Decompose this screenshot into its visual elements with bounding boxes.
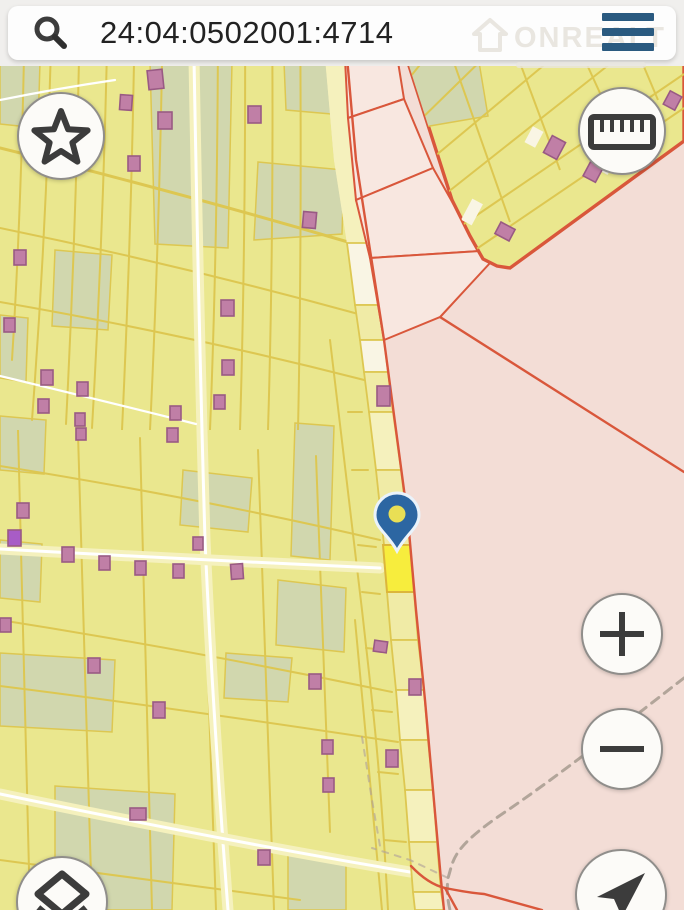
building [409, 679, 421, 695]
building [14, 250, 26, 265]
star-icon [30, 105, 92, 167]
building [170, 406, 181, 420]
building [373, 640, 387, 653]
building [158, 112, 172, 129]
search-bar[interactable]: 24:04:0502001:4714 ONREALT [8, 6, 676, 60]
hamburger-icon [602, 13, 654, 21]
building [119, 95, 132, 111]
building [214, 395, 225, 409]
cadastral-map-app: 24:04:0502001:4714 ONREALT [0, 0, 684, 910]
top-bar: 24:04:0502001:4714 ONREALT [0, 0, 684, 66]
building [130, 808, 146, 820]
building [322, 740, 333, 754]
building [128, 156, 140, 171]
building [4, 318, 15, 332]
building [323, 778, 334, 792]
building [222, 360, 234, 375]
building [41, 370, 53, 385]
building [38, 399, 49, 413]
building [173, 564, 184, 578]
building [76, 428, 86, 440]
building [309, 674, 321, 689]
zoom-out-button[interactable] [581, 708, 663, 790]
ruler-icon [587, 109, 657, 153]
building [258, 850, 270, 865]
building [135, 561, 146, 575]
navigation-arrow-icon [593, 869, 649, 910]
building [147, 69, 164, 89]
building [248, 106, 261, 123]
building [230, 564, 243, 580]
zoom-in-button[interactable] [581, 593, 663, 675]
search-icon [32, 15, 68, 51]
layers-icon [33, 870, 91, 910]
building [302, 211, 316, 228]
building [62, 547, 74, 562]
building [75, 413, 85, 426]
plus-icon [598, 610, 646, 658]
building [377, 386, 390, 406]
building [153, 702, 165, 718]
building [77, 382, 88, 396]
selected-parcel[interactable] [383, 545, 414, 592]
building [386, 750, 398, 767]
building [0, 618, 11, 632]
building [99, 556, 110, 570]
house-icon [470, 15, 510, 60]
building [193, 537, 203, 550]
building [17, 503, 29, 518]
building [167, 428, 178, 442]
measure-button[interactable] [578, 87, 666, 175]
minus-icon [598, 725, 646, 773]
building [8, 530, 21, 546]
menu-button[interactable] [602, 13, 654, 51]
favorites-button[interactable] [17, 92, 105, 180]
watermark-subline [516, 62, 646, 68]
search-input[interactable]: 24:04:0502001:4714 [100, 6, 393, 60]
building [221, 300, 234, 316]
building [88, 658, 100, 673]
